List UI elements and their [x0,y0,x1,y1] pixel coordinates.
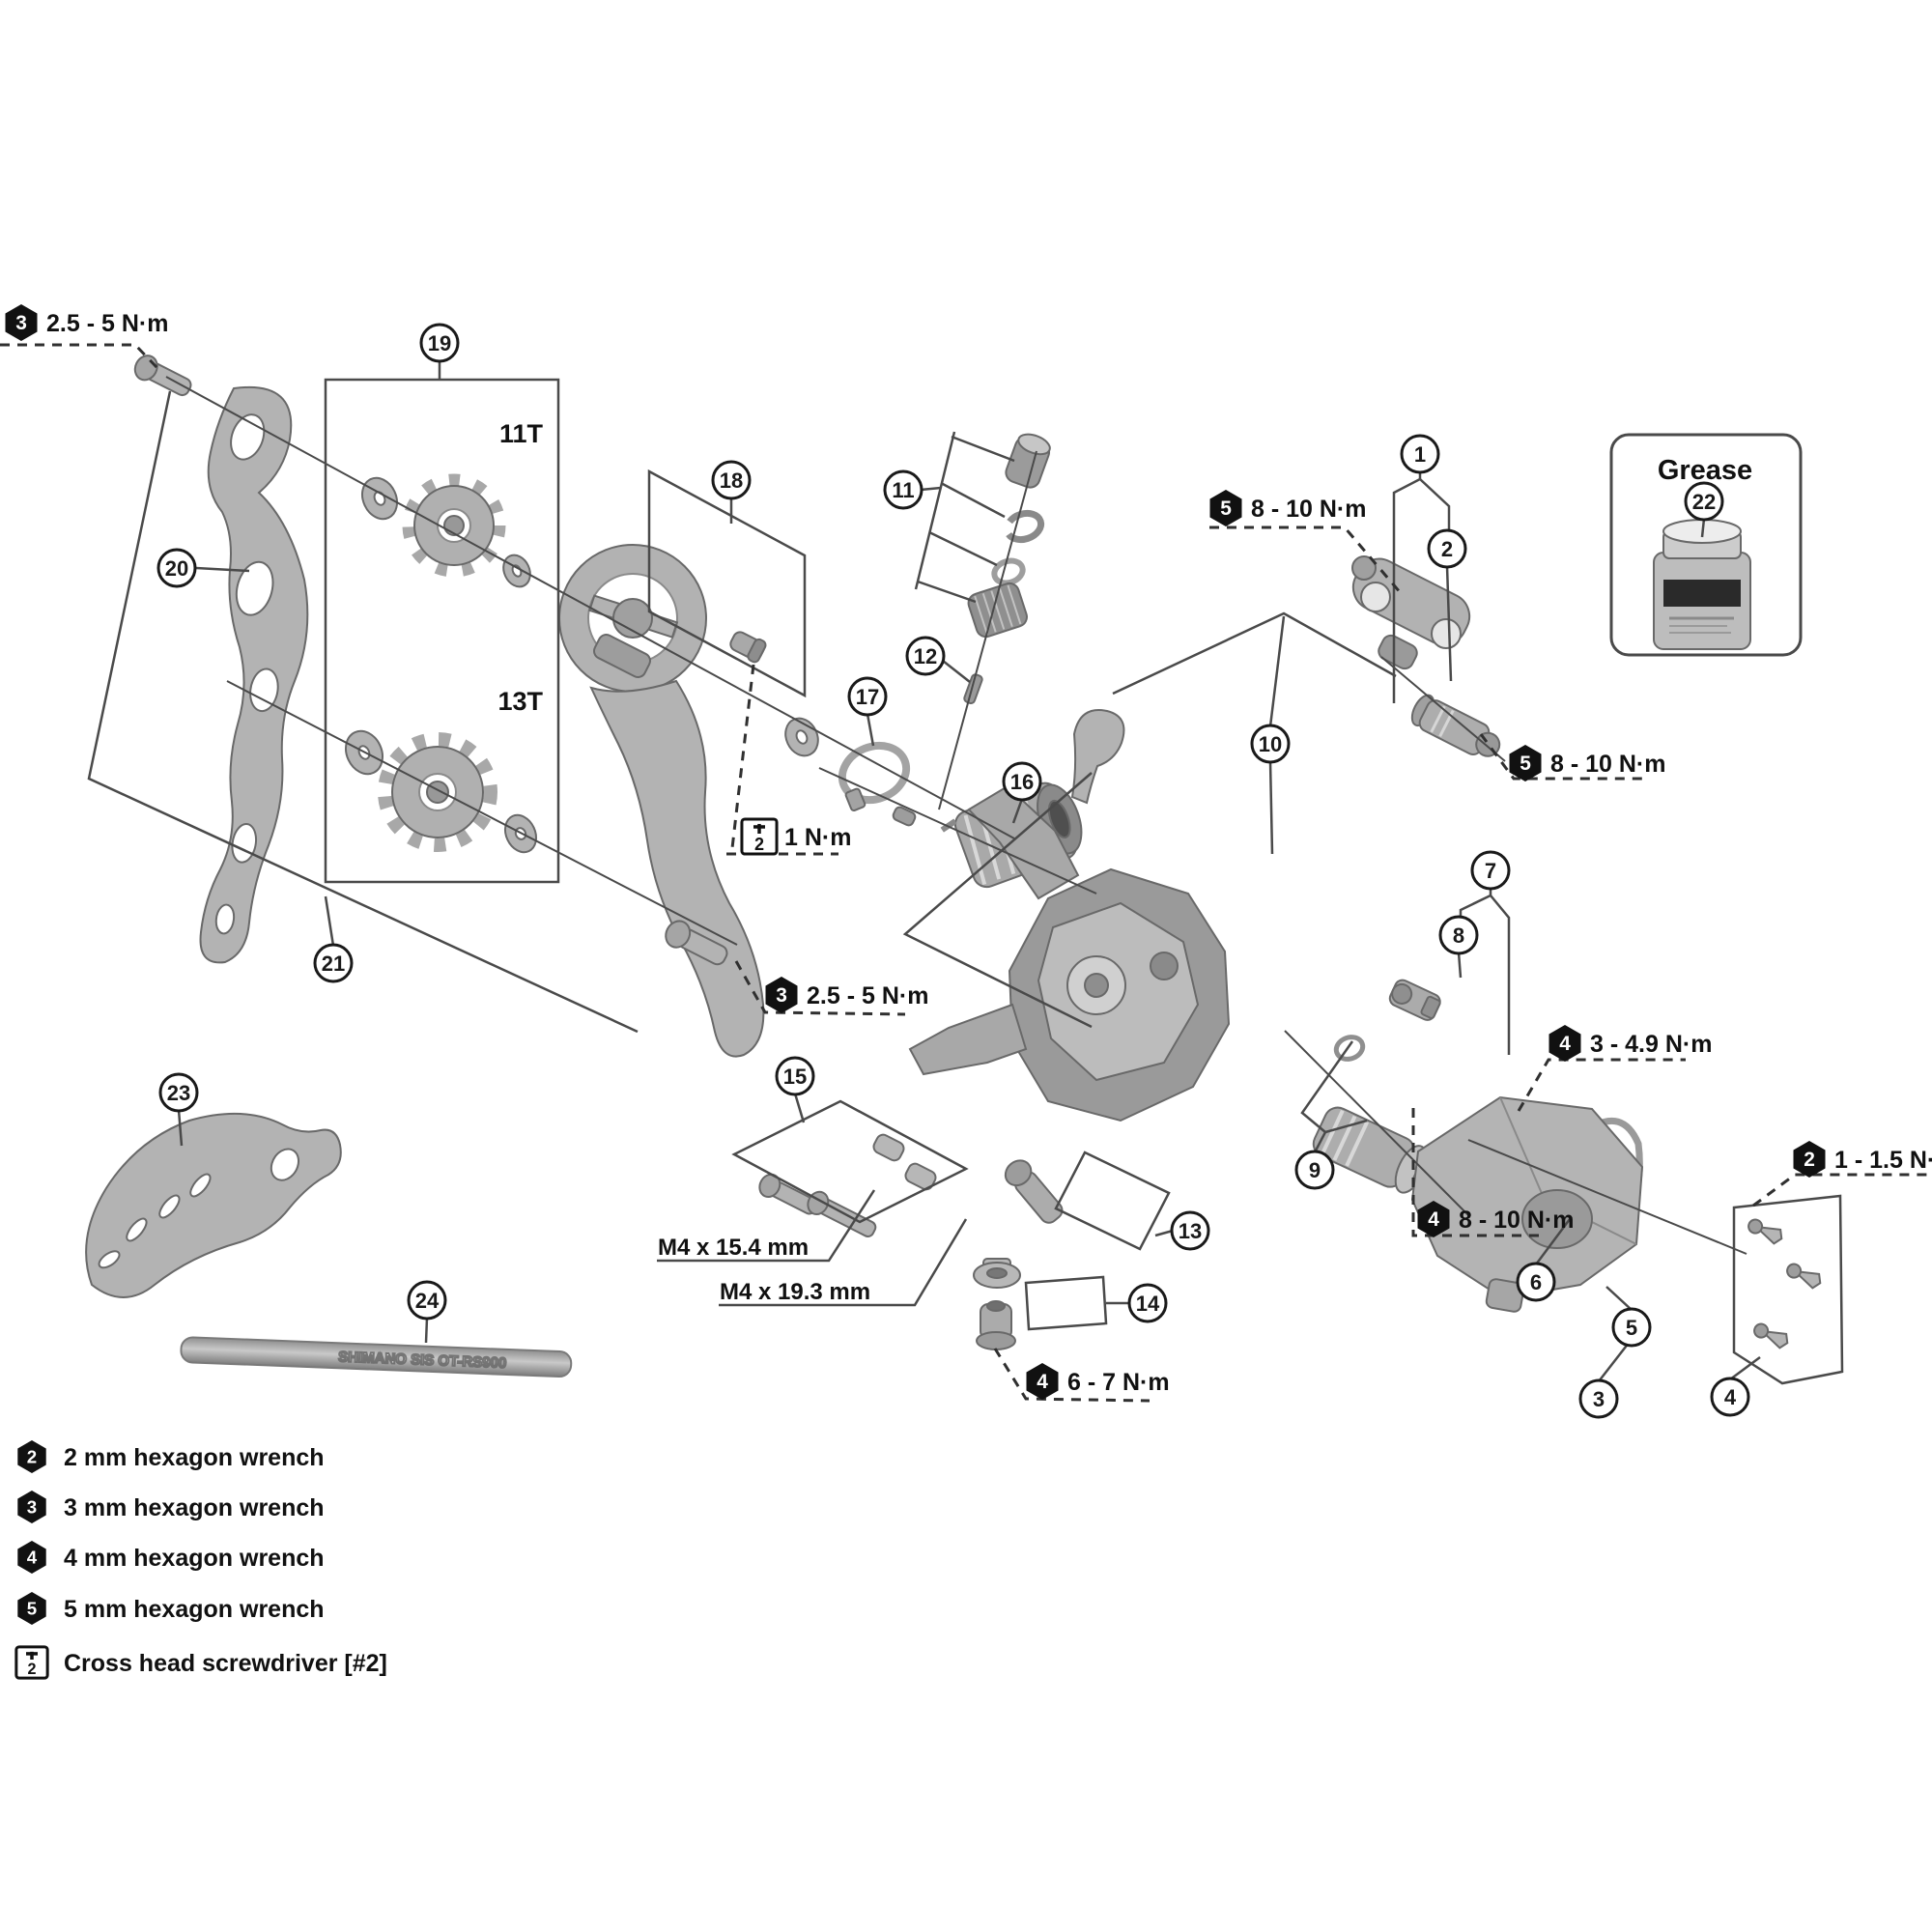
callout-4: 4 [1712,1378,1748,1415]
svg-text:3 - 4.9 N·m: 3 - 4.9 N·m [1590,1031,1712,1058]
exploded-parts-diagram: SHIMANO SIS OT-RS900 [0,0,1932,1932]
svg-text:4: 4 [1037,1371,1048,1393]
svg-text:17: 17 [856,685,879,709]
torque-label-cover-115: 21 - 1.5 N·m [1794,1141,1932,1178]
svg-text:8 - 10 N·m: 8 - 10 N·m [1459,1207,1574,1234]
svg-text:2.5 - 5 N·m: 2.5 - 5 N·m [807,982,928,1009]
svg-text:3 mm hexagon wrench: 3 mm hexagon wrench [64,1494,325,1521]
flanged-nut [977,1301,1015,1350]
svg-text:22: 22 [1692,490,1716,514]
callout-14: 14 [1129,1285,1166,1321]
svg-text:16: 16 [1010,770,1034,794]
bracket-axle-unit [1346,551,1478,671]
callout-19: 19 [421,325,458,361]
svg-text:3: 3 [1593,1387,1605,1411]
svg-text:2: 2 [1441,537,1453,561]
svg-text:5: 5 [1626,1316,1637,1340]
callout-18: 18 [713,462,750,498]
torque-label-top-right: 58 - 10 N·m [1210,490,1367,526]
legend-row-5: 2Cross head screwdriver [#2] [16,1647,387,1678]
svg-text:9: 9 [1309,1158,1321,1182]
svg-text:14: 14 [1136,1292,1160,1316]
callout-12: 12 [907,638,944,674]
svg-text:1: 1 [1414,442,1426,467]
svg-text:5 mm hexagon wrench: 5 mm hexagon wrench [64,1596,325,1623]
torque-label-adj-349: 43 - 4.9 N·m [1549,1025,1713,1062]
svg-text:3: 3 [27,1496,37,1517]
pulley-11t-label: 11T [499,419,544,448]
svg-text:15: 15 [783,1065,807,1089]
legend-row-4: 55 mm hexagon wrench [17,1592,324,1625]
svg-text:21: 21 [322,952,345,976]
svg-text:4: 4 [1724,1385,1737,1409]
callout-17: 17 [849,678,886,715]
torque-label-setscrew-1: 21 N·m [742,819,852,854]
legend-row-1: 22 mm hexagon wrench [17,1440,324,1473]
bracket-axle-bolt [1407,692,1506,764]
svg-text:23: 23 [167,1081,190,1105]
svg-text:4: 4 [27,1547,38,1567]
torque-label-casing-810: 48 - 10 N·m [1418,1201,1575,1237]
svg-text:5: 5 [27,1598,37,1618]
derailleur-exploded-view: SHIMANO SIS OT-RS900 [0,0,1932,1932]
svg-text:2: 2 [1804,1149,1815,1171]
svg-text:1 N·m: 1 N·m [784,824,851,851]
svg-text:Cross head screwdriver [#2]: Cross head screwdriver [#2] [64,1650,387,1677]
callout-13: 13 [1172,1212,1208,1249]
o-ring [991,557,1025,586]
callout-24: 24 [409,1282,445,1319]
svg-text:8: 8 [1453,923,1464,948]
callout-20: 20 [158,550,195,586]
callout-7: 7 [1472,852,1509,889]
inner-plate [559,545,763,1057]
m4-short-label: M4 x 15.4 mm [658,1235,809,1261]
svg-text:2 mm hexagon wrench: 2 mm hexagon wrench [64,1444,325,1471]
torque-label-pulleybolt-255: 32.5 - 5 N·m [766,977,929,1013]
callout-15: 15 [777,1058,813,1094]
m4-long-label: M4 x 19.3 mm [720,1279,870,1305]
svg-text:4: 4 [1559,1033,1571,1055]
callout-11: 11 [885,471,922,508]
torque-label-right: 58 - 10 N·m [1510,745,1666,781]
legend-row-3: 44 mm hexagon wrench [17,1541,324,1574]
o-ring-small [1333,1034,1366,1063]
svg-text:2: 2 [28,1661,37,1678]
grease-title: Grease [1658,455,1752,486]
m4-bolts [755,1132,937,1241]
c-clip [1004,509,1044,544]
svg-text:7: 7 [1485,859,1496,883]
svg-text:2: 2 [754,835,764,854]
pulley-13t-label: 13T [497,687,543,716]
grease-jar [1654,520,1750,649]
svg-text:3: 3 [15,312,27,334]
callout-10: 10 [1252,725,1289,762]
svg-text:4 mm hexagon wrench: 4 mm hexagon wrench [64,1545,325,1572]
callout-22: 22 [1686,483,1722,520]
pulley-11t [409,480,499,571]
svg-text:6 - 7 N·m: 6 - 7 N·m [1067,1369,1170,1396]
callout-1: 1 [1402,436,1438,472]
svg-text:10: 10 [1259,732,1282,756]
svg-text:13: 13 [1179,1219,1202,1243]
tool-legend: 22 mm hexagon wrench33 mm hexagon wrench… [16,1440,387,1678]
adjust-bolt [1001,1155,1067,1228]
knurled-barrel [966,581,1030,639]
dashed-lines-layer [0,345,1932,1401]
svg-text:3: 3 [776,984,787,1007]
callout-8: 8 [1440,917,1477,953]
svg-text:8 - 10 N·m: 8 - 10 N·m [1251,496,1366,523]
svg-text:5: 5 [1520,753,1531,775]
svg-text:2: 2 [27,1446,37,1466]
callout-9: 9 [1296,1151,1333,1188]
callout-3: 3 [1580,1380,1617,1417]
svg-text:1 - 1.5 N·m: 1 - 1.5 N·m [1834,1147,1932,1174]
pulley-13t [384,739,491,845]
adjuster-cap-group [966,430,1054,639]
svg-text:20: 20 [165,556,188,581]
callout-2: 2 [1429,530,1465,567]
legend-row-2: 33 mm hexagon wrench [17,1491,324,1523]
svg-text:19: 19 [428,331,451,355]
t-washer [974,1259,1020,1288]
callout-16: 16 [1004,763,1040,800]
callout-5: 5 [1613,1309,1650,1346]
svg-text:18: 18 [720,469,743,493]
svg-text:8 - 10 N·m: 8 - 10 N·m [1550,751,1665,778]
svg-text:11: 11 [892,478,914,502]
svg-text:6: 6 [1530,1270,1542,1294]
shift-cable: SHIMANO SIS OT-RS900 [181,1337,572,1377]
cable-clamp [1387,978,1442,1023]
svg-text:5: 5 [1220,497,1232,520]
torque-label-top-left: 32.5 - 5 N·m [6,304,169,341]
cover-screws [1746,1216,1823,1350]
callout-6: 6 [1518,1264,1554,1300]
support-bracket [86,1114,341,1297]
outer-plate [201,387,308,963]
callout-23: 23 [160,1074,197,1111]
chain-hook [1072,710,1123,803]
svg-text:2.5 - 5 N·m: 2.5 - 5 N·m [46,310,168,337]
torque-label-nut-67: 46 - 7 N·m [1027,1363,1170,1400]
svg-text:4: 4 [1428,1208,1439,1231]
svg-text:24: 24 [415,1289,440,1313]
svg-text:12: 12 [914,644,937,668]
cage-bolt-upper [131,352,195,401]
callout-21: 21 [315,945,352,981]
